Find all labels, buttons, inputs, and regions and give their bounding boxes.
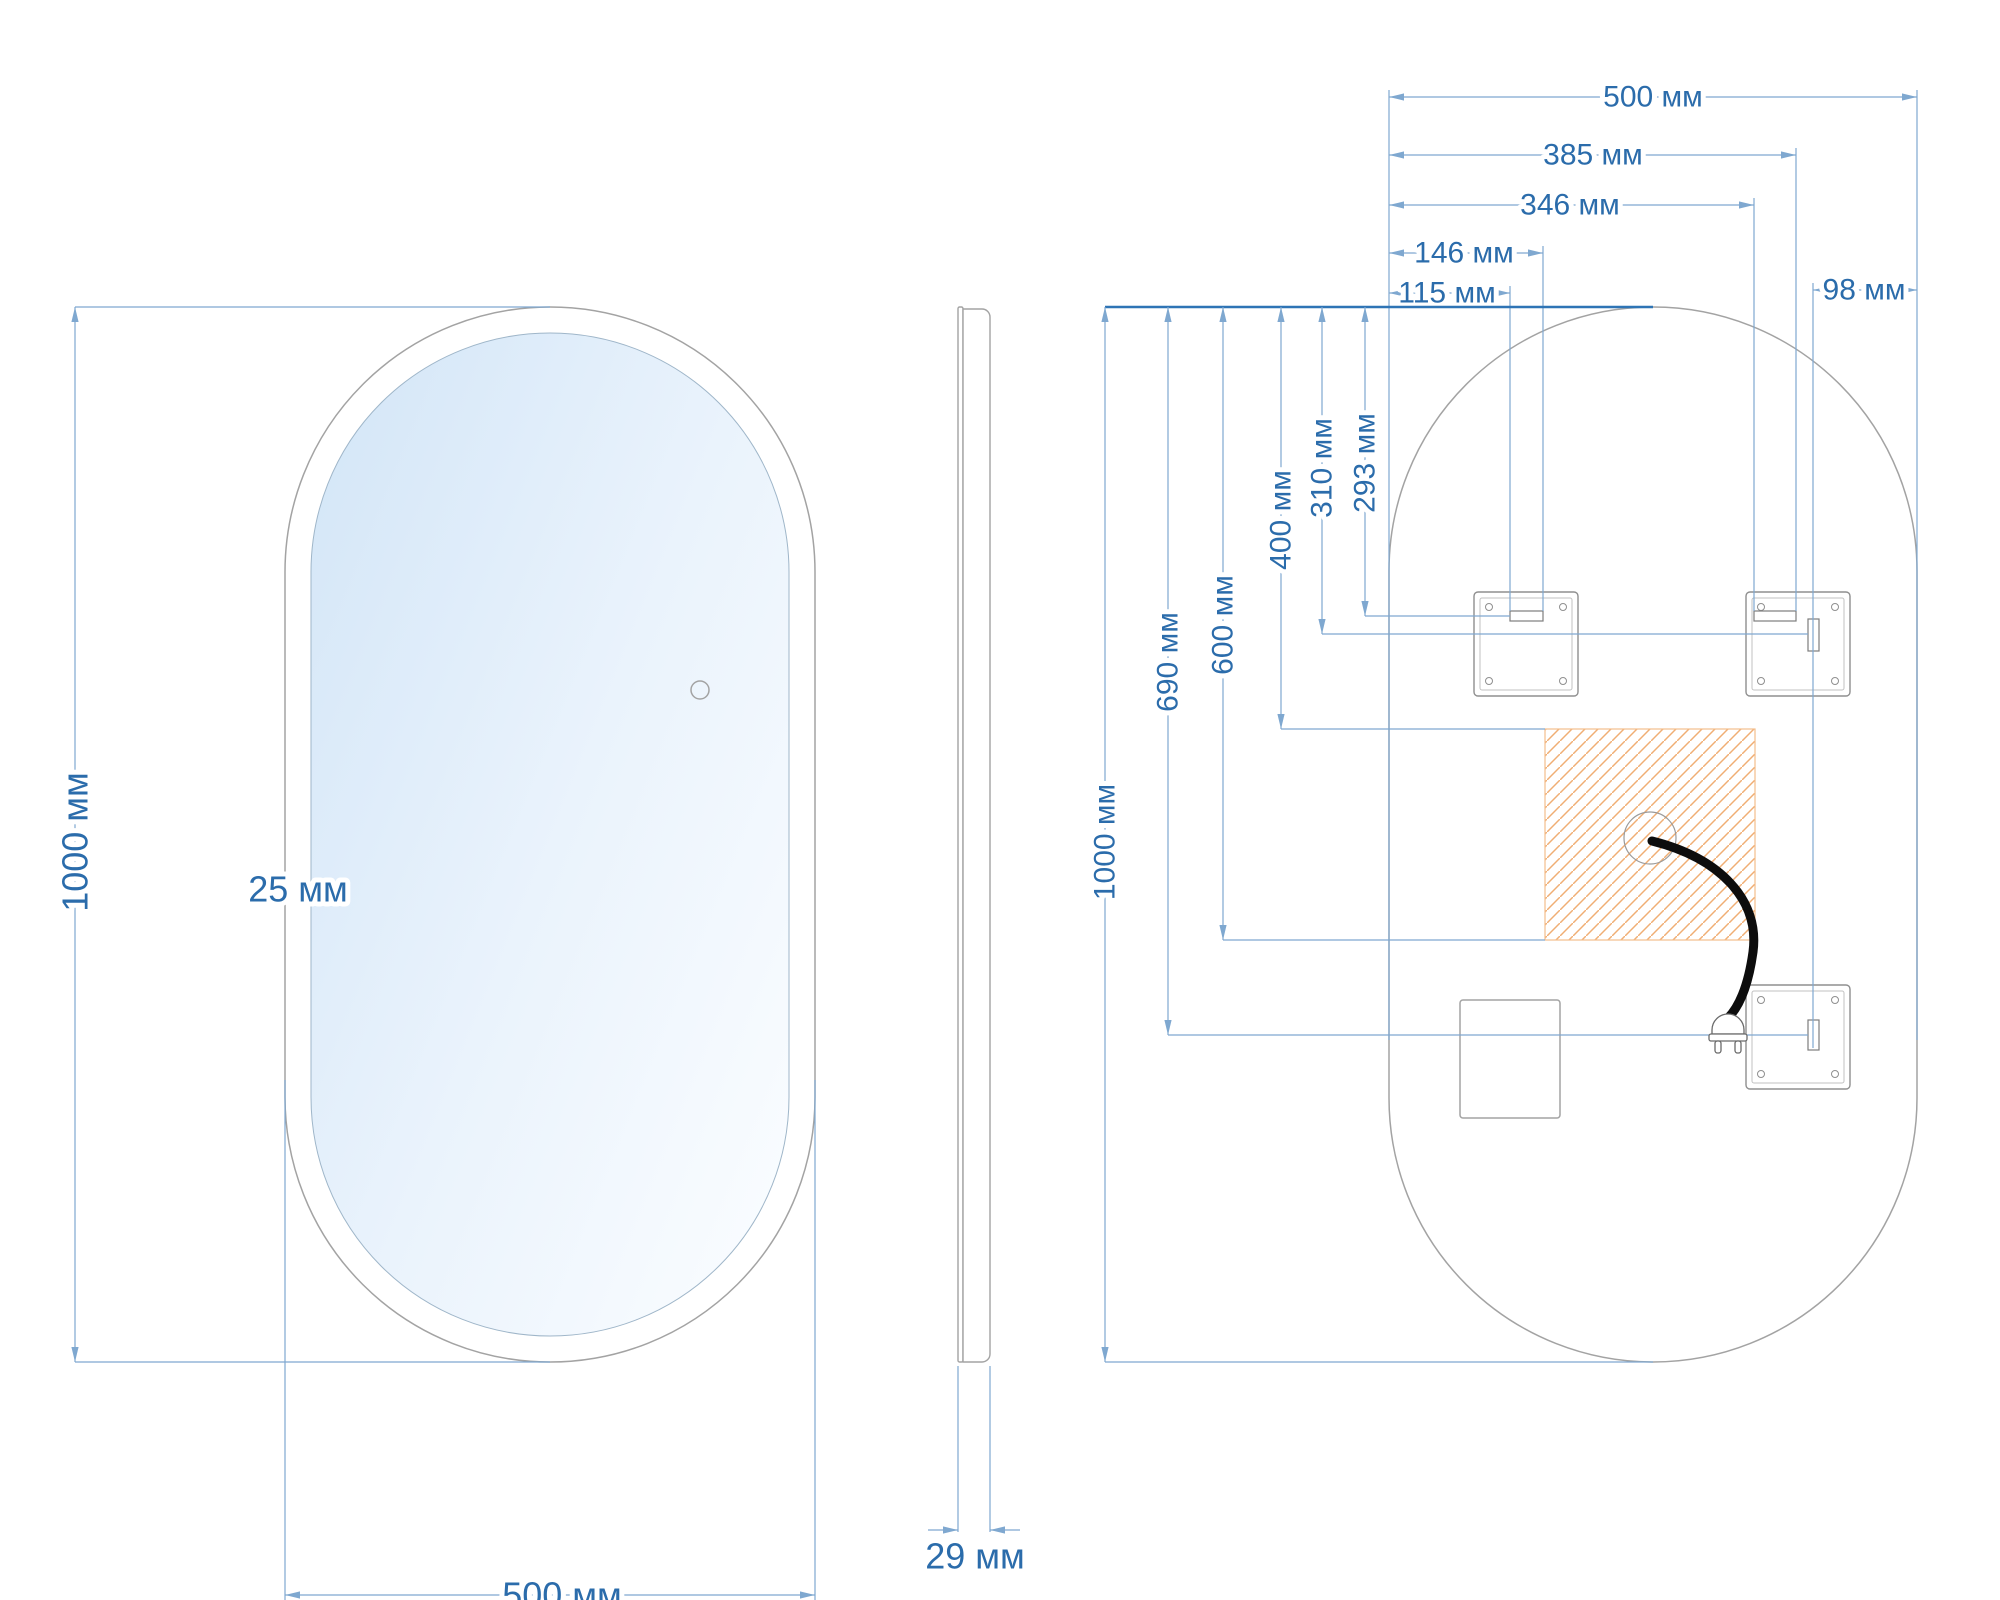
back-width-label: 500 мм	[1603, 81, 1703, 114]
junction-box-hatch	[1545, 729, 1755, 940]
side-depth-dimension: 29 мм	[925, 1366, 1025, 1577]
bracket-top-left	[1474, 592, 1578, 696]
bracket-bottom-right	[1746, 985, 1850, 1089]
screw-hole-icon	[1832, 678, 1839, 685]
dim-98-label: 98 мм	[1823, 274, 1906, 307]
screw-hole-icon	[1560, 604, 1567, 611]
mirror-technical-drawing: 1000 мм 500 мм 25 мм 29 мм	[0, 0, 2000, 1600]
dim-346-label: 346 мм	[1520, 189, 1620, 222]
screw-hole-icon	[1560, 678, 1567, 685]
side-depth-label: 29 мм	[925, 1536, 1025, 1577]
screw-hole-icon	[1832, 1071, 1839, 1078]
dim-310-label: 310 мм	[1306, 418, 1339, 518]
bracket-top-right	[1746, 592, 1850, 696]
plug-icon	[1709, 1014, 1747, 1053]
hanging-slot	[1510, 611, 1543, 621]
back-height-label: 1000 мм	[1089, 784, 1122, 900]
front-height-label: 1000 мм	[55, 772, 96, 912]
screw-hole-icon	[1758, 678, 1765, 685]
dim-293-label: 293 мм	[1349, 413, 1382, 513]
plug-base	[1709, 1034, 1747, 1041]
dim-385-label: 385 мм	[1543, 139, 1643, 172]
plug-head	[1712, 1014, 1744, 1034]
drawing-canvas: 1000 мм 500 мм 25 мм 29 мм	[0, 0, 2000, 1600]
screw-hole-icon	[1486, 678, 1493, 685]
dim-400-label: 400 мм	[1265, 470, 1298, 570]
side-view: 29 мм	[925, 307, 1025, 1577]
front-mirror-glass	[311, 333, 789, 1336]
dim-146-label: 146 мм	[1414, 237, 1514, 270]
hanging-slot	[1754, 611, 1796, 621]
dim-600-label: 600 мм	[1207, 575, 1240, 675]
screw-hole-icon	[1832, 997, 1839, 1004]
side-glass-sheet	[958, 307, 963, 1362]
dim-115-label: 115 мм	[1398, 277, 1495, 310]
side-body-profile	[963, 309, 990, 1362]
front-view: 1000 мм 500 мм 25 мм	[55, 307, 816, 1600]
frame-width-dimension: 25 мм	[248, 869, 348, 910]
screw-hole-icon	[1758, 997, 1765, 1004]
back-view: 500 мм 385 мм 346 мм 146 мм 115 мм 98 мм…	[1089, 81, 1918, 1363]
plug-pin	[1735, 1041, 1741, 1053]
plug-pin	[1715, 1041, 1721, 1053]
screw-hole-icon	[1486, 604, 1493, 611]
driver-box	[1460, 1000, 1560, 1118]
dim-690-label: 690 мм	[1152, 612, 1185, 712]
front-width-label: 500 мм	[502, 1575, 622, 1600]
frame-width-label: 25 мм	[248, 869, 348, 910]
screw-hole-icon	[1832, 604, 1839, 611]
screw-hole-icon	[1758, 1071, 1765, 1078]
screw-hole-icon	[1758, 604, 1765, 611]
